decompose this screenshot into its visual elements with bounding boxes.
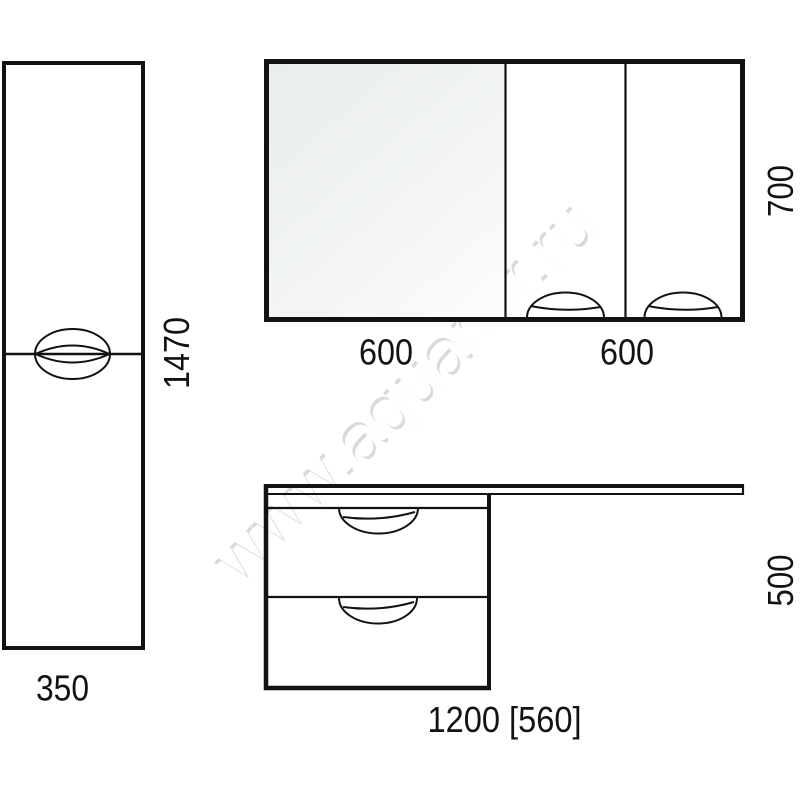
svg-text:1200 [560]: 1200 [560] xyxy=(428,699,582,740)
svg-text:500: 500 xyxy=(760,555,800,607)
svg-text:350: 350 xyxy=(36,668,89,709)
svg-text:600: 600 xyxy=(600,332,654,373)
svg-text:600: 600 xyxy=(359,332,413,373)
svg-text:1470: 1470 xyxy=(156,317,197,389)
svg-text:700: 700 xyxy=(760,165,800,217)
